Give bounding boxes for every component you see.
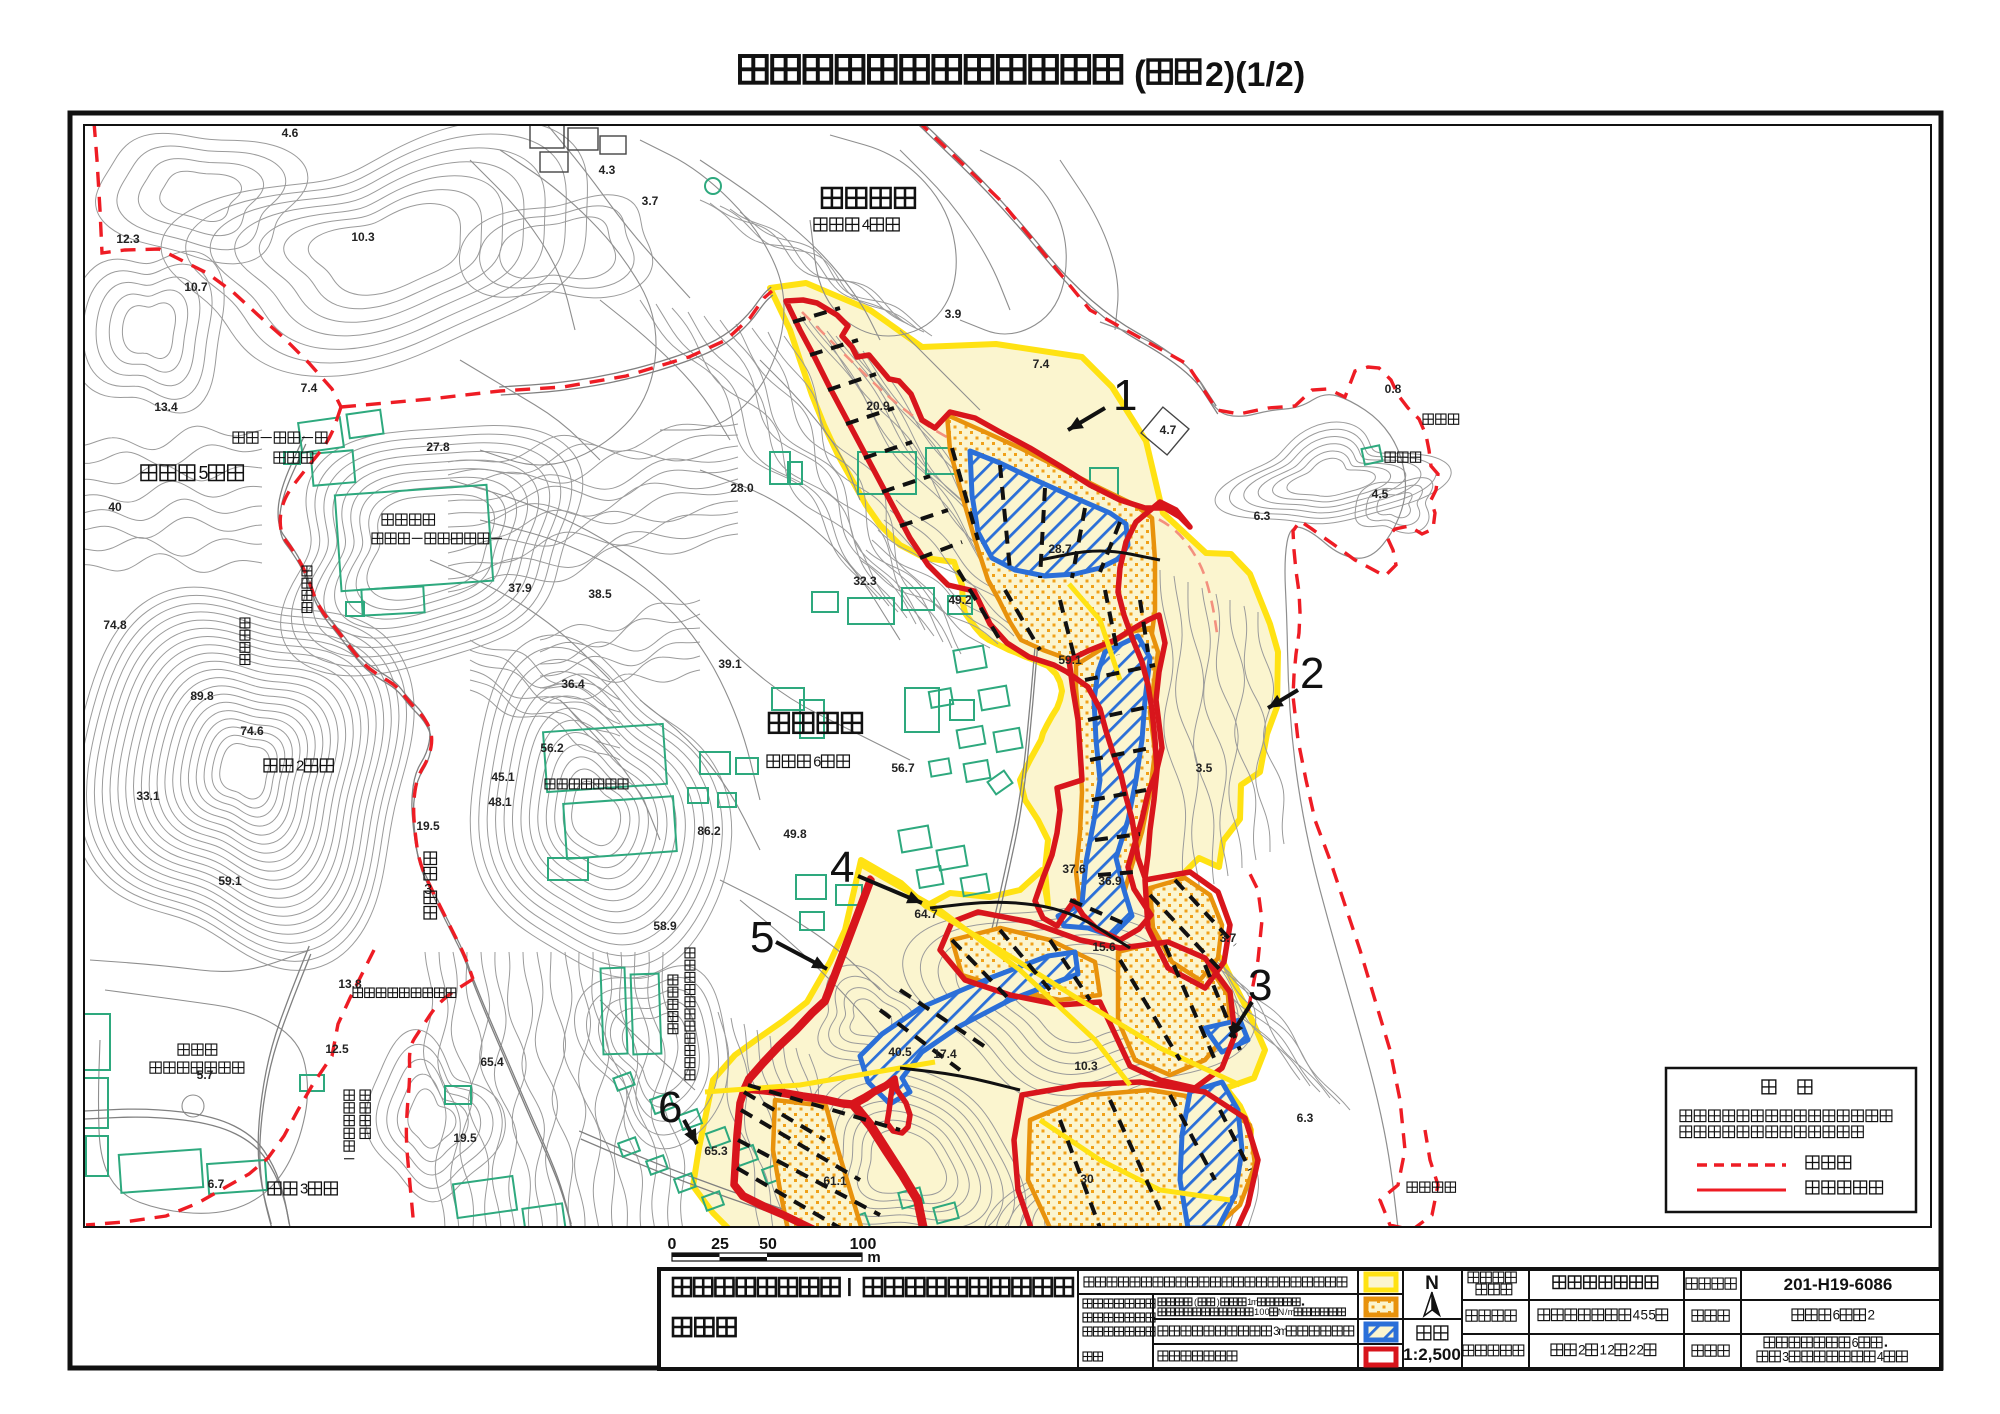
svg-text:10.3: 10.3 xyxy=(351,230,375,244)
svg-text:4: 4 xyxy=(1633,1308,1641,1323)
svg-text:38.5: 38.5 xyxy=(588,587,612,601)
svg-text:37.6: 37.6 xyxy=(1062,862,1086,876)
svg-text:N: N xyxy=(1425,1273,1439,1294)
svg-text:3.7: 3.7 xyxy=(642,194,659,208)
svg-text:3: 3 xyxy=(300,1181,308,1198)
svg-text:6: 6 xyxy=(1833,1308,1841,1323)
svg-text:28.0: 28.0 xyxy=(730,481,754,495)
svg-text:12.3: 12.3 xyxy=(116,232,140,246)
svg-text:4.6: 4.6 xyxy=(282,126,299,140)
svg-text:36.4: 36.4 xyxy=(561,677,585,691)
svg-text:58.9: 58.9 xyxy=(653,919,677,933)
svg-text:74.6: 74.6 xyxy=(240,724,264,738)
svg-text:5: 5 xyxy=(1648,1308,1656,1323)
svg-text:30: 30 xyxy=(1080,1172,1094,1186)
svg-text:59.1: 59.1 xyxy=(1058,653,1082,667)
svg-text:(: ( xyxy=(1134,53,1146,94)
svg-text:40.5: 40.5 xyxy=(888,1045,912,1059)
svg-text:19.5: 19.5 xyxy=(453,1131,477,1145)
svg-text:3: 3 xyxy=(1782,1350,1789,1364)
svg-text:2: 2 xyxy=(296,758,304,775)
svg-text:17.4: 17.4 xyxy=(933,1047,957,1061)
svg-text:0: 0 xyxy=(668,1236,677,1253)
svg-text:5.7: 5.7 xyxy=(197,1068,214,1082)
svg-text:48.1: 48.1 xyxy=(488,795,512,809)
svg-text:27.8: 27.8 xyxy=(426,440,450,454)
svg-text:15.6: 15.6 xyxy=(1092,940,1116,954)
svg-text:0: 0 xyxy=(1265,1307,1270,1317)
svg-text:m: m xyxy=(867,1249,880,1266)
svg-text:2: 2 xyxy=(1867,1308,1875,1323)
svg-text:N: N xyxy=(1278,1307,1285,1317)
svg-text:4: 4 xyxy=(862,217,870,234)
svg-text:4.5: 4.5 xyxy=(1372,487,1389,501)
svg-text:65.3: 65.3 xyxy=(704,1144,728,1158)
svg-text:7.4: 7.4 xyxy=(1033,357,1050,371)
svg-text:10.3: 10.3 xyxy=(1074,1059,1098,1073)
svg-text:2: 2 xyxy=(1629,1343,1637,1358)
svg-text:89.8: 89.8 xyxy=(190,689,214,703)
svg-text:3: 3 xyxy=(1248,961,1272,1010)
svg-text:6: 6 xyxy=(1852,1336,1859,1350)
svg-text:86.2: 86.2 xyxy=(697,824,721,838)
svg-text:37.9: 37.9 xyxy=(508,581,532,595)
svg-text:1: 1 xyxy=(1599,1343,1607,1358)
svg-text:(: ( xyxy=(1194,1297,1197,1307)
svg-text:1: 1 xyxy=(1113,371,1137,420)
svg-text:1: 1 xyxy=(1254,1307,1259,1317)
svg-text:20.9: 20.9 xyxy=(866,399,890,413)
svg-text:45.1: 45.1 xyxy=(491,770,515,784)
svg-text:): ) xyxy=(1217,1297,1220,1307)
svg-text:32.3: 32.3 xyxy=(853,574,877,588)
svg-text:74.8: 74.8 xyxy=(103,618,127,632)
svg-text:13.4: 13.4 xyxy=(154,400,178,414)
svg-text:56.2: 56.2 xyxy=(540,741,564,755)
svg-text:3: 3 xyxy=(424,882,432,898)
svg-text:64.7: 64.7 xyxy=(914,907,938,921)
svg-text:0.8: 0.8 xyxy=(1385,382,1402,396)
svg-text:2: 2 xyxy=(1578,1343,1586,1358)
svg-text:201-H19-6086: 201-H19-6086 xyxy=(1784,1275,1893,1294)
svg-text:61.1: 61.1 xyxy=(823,1174,847,1188)
svg-text:28.7: 28.7 xyxy=(1048,542,1072,556)
svg-text:6.3: 6.3 xyxy=(1254,509,1271,523)
svg-text:5: 5 xyxy=(1640,1308,1648,1323)
svg-text:6.3: 6.3 xyxy=(1297,1111,1314,1125)
svg-text:36.9: 36.9 xyxy=(1098,874,1122,888)
svg-text:4: 4 xyxy=(1877,1350,1884,1364)
svg-text:3.9: 3.9 xyxy=(945,307,962,321)
svg-text:2: 2 xyxy=(1300,649,1324,698)
svg-text:19.5: 19.5 xyxy=(416,819,440,833)
svg-text:33.1: 33.1 xyxy=(136,789,160,803)
svg-text:25: 25 xyxy=(711,1236,729,1253)
svg-text:65.4: 65.4 xyxy=(480,1055,504,1069)
svg-text:10.7: 10.7 xyxy=(184,280,208,294)
svg-text:2)(1/2): 2)(1/2) xyxy=(1205,56,1305,94)
svg-text:12.5: 12.5 xyxy=(325,1042,349,1056)
svg-text:3.5: 3.5 xyxy=(1196,761,1213,775)
svg-text:6: 6 xyxy=(658,1083,682,1132)
svg-text:7.4: 7.4 xyxy=(301,381,318,395)
svg-text:39.1: 39.1 xyxy=(718,657,742,671)
svg-text:1:2,500: 1:2,500 xyxy=(1403,1345,1461,1364)
svg-text:6.7: 6.7 xyxy=(208,1177,225,1191)
svg-text:4: 4 xyxy=(830,843,854,892)
svg-text:5: 5 xyxy=(198,463,208,483)
svg-text:40: 40 xyxy=(108,500,122,514)
svg-text:56.7: 56.7 xyxy=(891,761,915,775)
svg-text:49.2: 49.2 xyxy=(948,593,972,607)
svg-text:59.1: 59.1 xyxy=(218,874,242,888)
svg-text:6: 6 xyxy=(813,754,821,770)
svg-text:13.8: 13.8 xyxy=(338,977,362,991)
svg-text:4.3: 4.3 xyxy=(599,163,616,177)
svg-text:3.7: 3.7 xyxy=(1220,931,1237,945)
svg-text:4.7: 4.7 xyxy=(1160,423,1177,437)
svg-text:2: 2 xyxy=(1636,1343,1644,1358)
svg-text:2: 2 xyxy=(1607,1343,1615,1358)
svg-text:49.8: 49.8 xyxy=(783,827,807,841)
svg-text:5: 5 xyxy=(750,913,774,962)
svg-text:50: 50 xyxy=(759,1236,777,1253)
